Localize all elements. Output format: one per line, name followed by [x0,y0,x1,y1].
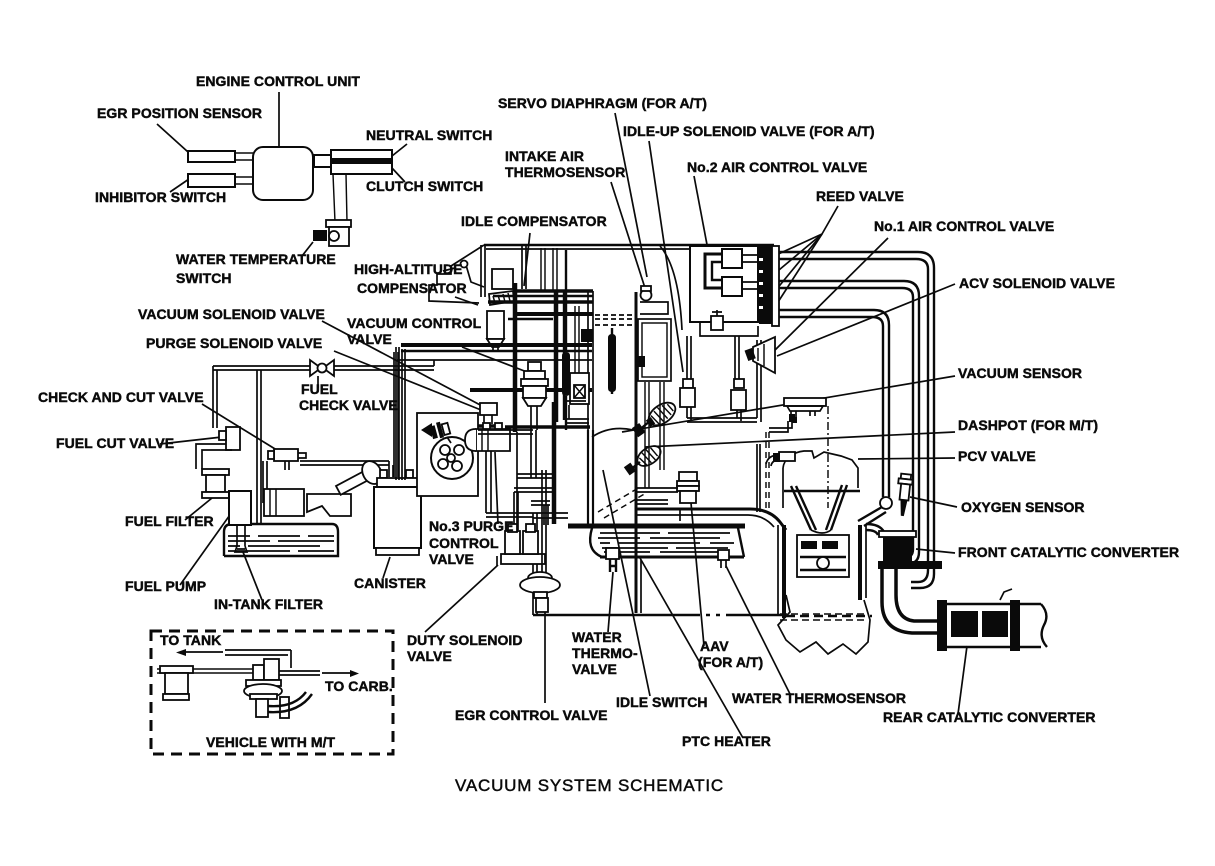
svg-text:CLUTCH SWITCH: CLUTCH SWITCH [366,178,483,194]
svg-text:FUEL CUT VALVE: FUEL CUT VALVE [56,435,174,451]
svg-text:No.2 AIR CONTROL VALVE: No.2 AIR CONTROL VALVE [687,159,867,175]
svg-text:VALVE: VALVE [572,661,617,677]
svg-text:PURGE SOLENOID VALVE: PURGE SOLENOID VALVE [146,335,322,351]
svg-text:EGR CONTROL VALVE: EGR CONTROL VALVE [455,707,608,723]
svg-text:PTC HEATER: PTC HEATER [682,733,771,749]
svg-text:REED VALVE: REED VALVE [816,188,904,204]
svg-text:(FOR A/T): (FOR A/T) [698,654,763,670]
svg-text:ENGINE CONTROL UNIT: ENGINE CONTROL UNIT [196,73,360,89]
svg-text:WATER: WATER [572,629,622,645]
svg-text:ACV SOLENOID VALVE: ACV SOLENOID VALVE [959,275,1115,291]
svg-text:AAV: AAV [700,638,729,654]
svg-text:CHECK AND CUT VALVE: CHECK AND CUT VALVE [38,389,204,405]
svg-text:TO TANK: TO TANK [160,632,221,648]
svg-text:No.3 PURGE: No.3 PURGE [429,518,514,534]
svg-text:TO CARB.: TO CARB. [325,678,393,694]
svg-text:NEUTRAL SWITCH: NEUTRAL SWITCH [366,127,492,143]
svg-text:No.1 AIR CONTROL VALVE: No.1 AIR CONTROL VALVE [874,218,1054,234]
svg-text:IDLE SWITCH: IDLE SWITCH [616,694,708,710]
svg-text:WATER TEMPERATURE: WATER TEMPERATURE [176,251,336,267]
svg-text:INHIBITOR SWITCH: INHIBITOR SWITCH [95,189,226,205]
svg-text:HIGH-ALTITUDE: HIGH-ALTITUDE [354,261,463,277]
svg-text:CONTROL: CONTROL [429,535,499,551]
svg-text:VALVE: VALVE [407,648,452,664]
svg-text:FUEL PUMP: FUEL PUMP [125,578,206,594]
svg-text:IDLE-UP SOLENOID VALVE (FOR A/: IDLE-UP SOLENOID VALVE (FOR A/T) [623,123,875,139]
svg-text:OXYGEN SENSOR: OXYGEN SENSOR [961,499,1085,515]
svg-text:CHECK VALVE: CHECK VALVE [299,397,398,413]
svg-text:FUEL FILTER: FUEL FILTER [125,513,214,529]
svg-text:VALVE: VALVE [429,551,474,567]
svg-text:FRONT CATALYTIC CONVERTER: FRONT CATALYTIC CONVERTER [958,544,1179,560]
svg-text:INTAKE AIR: INTAKE AIR [505,148,584,164]
svg-text:VEHICLE WITH M/T: VEHICLE WITH M/T [206,734,336,750]
svg-text:WATER THERMOSENSOR: WATER THERMOSENSOR [732,690,906,706]
svg-text:EGR POSITION SENSOR: EGR POSITION SENSOR [97,105,262,121]
svg-text:FUEL: FUEL [301,381,338,397]
svg-text:VACUUM SYSTEM SCHEMATIC: VACUUM SYSTEM SCHEMATIC [455,776,724,795]
svg-text:IN-TANK FILTER: IN-TANK FILTER [214,596,323,612]
svg-text:THERMOSENSOR: THERMOSENSOR [505,164,625,180]
svg-text:VACUUM CONTROL: VACUUM CONTROL [347,315,482,331]
svg-text:VACUUM SENSOR: VACUUM SENSOR [958,365,1082,381]
svg-text:THERMO-: THERMO- [572,645,638,661]
svg-text:CANISTER: CANISTER [354,575,426,591]
svg-text:DASHPOT (FOR M/T): DASHPOT (FOR M/T) [958,417,1098,433]
svg-text:SERVO DIAPHRAGM (FOR A/T): SERVO DIAPHRAGM (FOR A/T) [498,95,707,111]
svg-text:PCV VALVE: PCV VALVE [958,448,1036,464]
svg-text:COMPENSATOR: COMPENSATOR [357,280,467,296]
svg-text:REAR CATALYTIC CONVERTER: REAR CATALYTIC CONVERTER [883,709,1096,725]
svg-text:VACUUM SOLENOID VALVE: VACUUM SOLENOID VALVE [138,306,325,322]
svg-text:SWITCH: SWITCH [176,270,232,286]
svg-text:VALVE: VALVE [347,331,392,347]
svg-text:IDLE COMPENSATOR: IDLE COMPENSATOR [461,213,607,229]
svg-text:DUTY SOLENOID: DUTY SOLENOID [407,632,523,648]
